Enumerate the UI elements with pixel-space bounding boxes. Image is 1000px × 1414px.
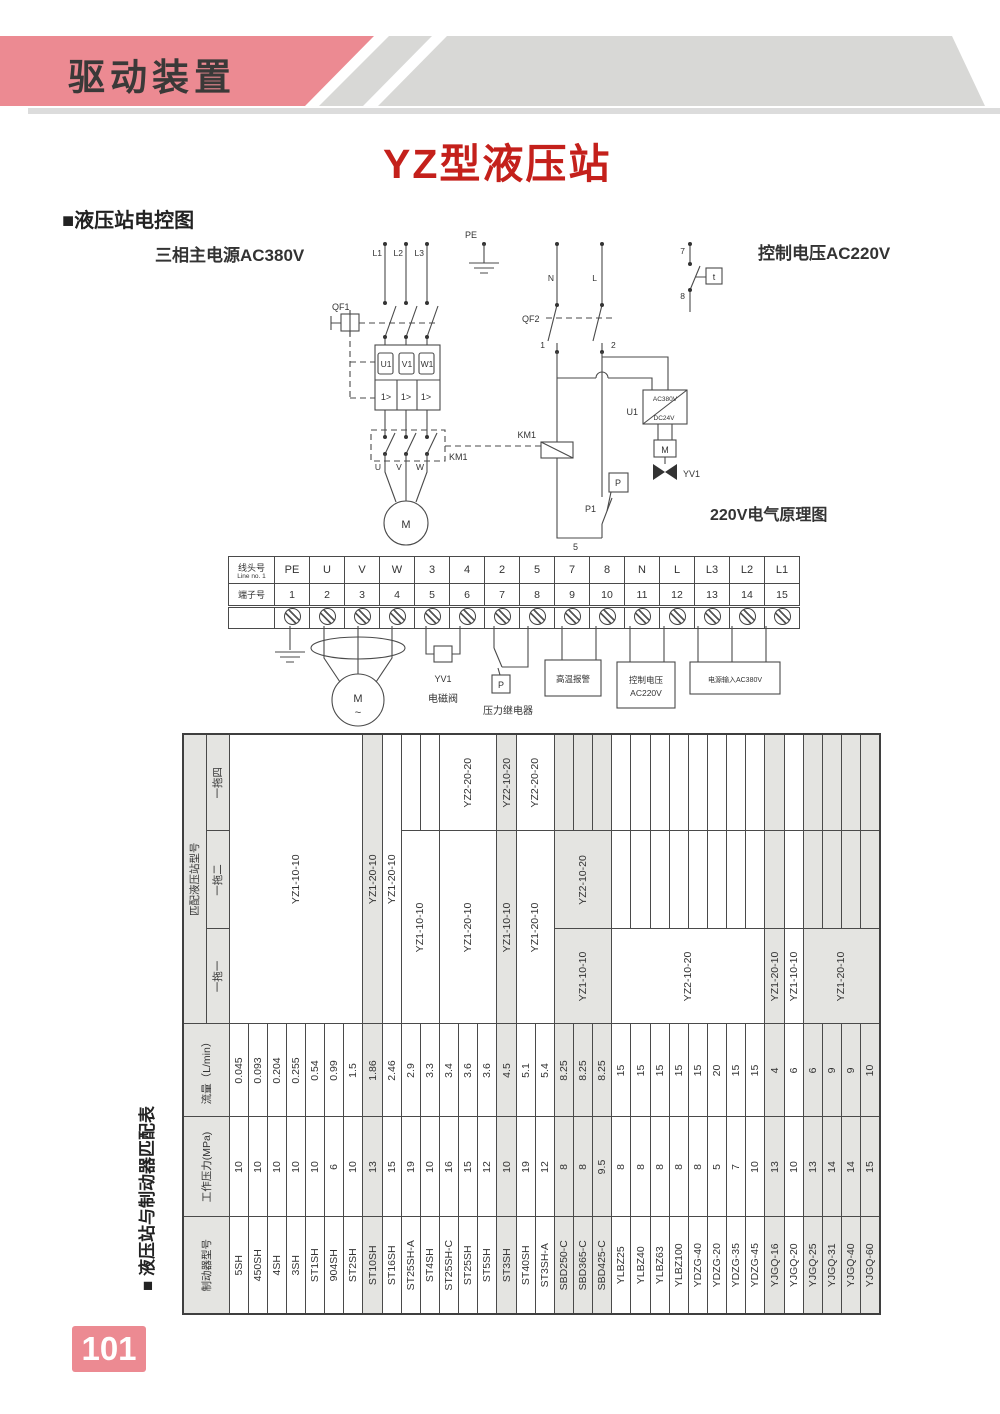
flow-cell: 3.4 [440,1024,459,1117]
terminal-cell: 2 [310,584,345,607]
brake-model-cell: SBD250-C [554,1217,573,1314]
svg-text:L1: L1 [373,248,383,258]
flow-cell: 0.99 [325,1024,344,1117]
terminal-cell: 1 [275,584,310,607]
svg-text:YV1: YV1 [434,674,451,684]
terminal-screw-icon [459,608,476,625]
terminal-cell: V [345,557,380,584]
brake-model-cell: ST3SH [497,1217,516,1314]
brake-model-cell: YDZG-45 [746,1217,765,1314]
flow-cell: 20 [708,1024,727,1117]
pressure-relay-annotation: P 压力继电器 [483,626,533,717]
empty-station-cell [669,831,688,929]
terminal-cell: 8 [520,584,555,607]
terminal-cell: 8 [590,557,625,584]
match-table-area: 制动器型号工作压力(MPa)流量（L/min）匹配液压站型号一拖一一拖二一拖四5… [182,735,878,1315]
pressure-cell: 10 [248,1117,267,1217]
svg-text:KM1: KM1 [449,452,468,462]
station-model-cell: YZ1-10-10 [784,929,803,1024]
station-model-cell: YZ1-20-10 [363,734,382,1024]
svg-text:YV1: YV1 [683,469,700,479]
flow-cell: 5.4 [535,1024,554,1117]
station-model-cell: YZ1-20-10 [382,734,401,1024]
terminal-cell: 11 [625,584,660,607]
svg-text:P1: P1 [585,504,596,514]
station-model-cell: YZ1-20-10 [440,831,497,1024]
svg-text:W1: W1 [421,359,434,369]
header-one-drag-one: 一拖一 [206,929,229,1024]
brake-model-cell: YLBZ100 [669,1217,688,1314]
overload-symbol: 1> [401,392,411,402]
section-heading-match-table: ■ 液压站与制动器匹配表 [133,1091,154,1306]
station-model-cell: YZ1-20-10 [803,929,880,1024]
brake-model-cell: ST4SH [420,1217,439,1314]
pressure-cell: 14 [842,1117,861,1217]
empty-station-cell [708,734,727,831]
tilde-icon: ~ [355,707,361,719]
empty-station-cell [765,734,784,831]
pressure-cell: 12 [478,1117,497,1217]
brake-model-cell: ST40SH [516,1217,535,1314]
brake-model-cell: YJGQ-40 [842,1217,861,1314]
pressure-cell: 10 [784,1117,803,1217]
brake-model-cell: ST2SH [344,1217,363,1314]
flow-cell: 15 [746,1024,765,1117]
high-temp-alarm-box: 高温报警 [545,626,601,696]
flow-cell: 6 [784,1024,803,1117]
label-control-voltage: 控制电压AC220V [758,239,890,264]
empty-station-cell [727,831,746,929]
svg-text:V: V [396,462,402,472]
empty-station-cell [631,831,650,929]
pressure-cell: 10 [306,1117,325,1217]
terminal-cell: 端子号 [229,584,275,607]
svg-text:AC220V: AC220V [630,688,662,698]
station-model-cell: YZ2-20-20 [516,734,554,831]
empty-station-cell [861,831,880,929]
empty-station-cell [650,831,669,929]
pressure-cell: 13 [803,1117,822,1217]
pressure-cell: 10 [420,1117,439,1217]
motor-label: M [401,519,410,531]
svg-text:DC24V: DC24V [654,415,676,422]
page-number: 101 [72,1326,146,1372]
terminal-annotations: M ~ YV1 电磁阀 P 压力继电器 高温报警 控制电压 AC220V 电源输… [228,626,790,738]
pressure-cell: 10 [746,1117,765,1217]
svg-text:M: M [353,693,362,705]
svg-text:压力继电器: 压力继电器 [483,704,533,717]
flow-cell: 1.86 [363,1024,382,1117]
svg-text:QF1: QF1 [332,302,350,312]
brake-model-cell: ST1SH [306,1217,325,1314]
empty-station-cell [631,734,650,831]
empty-station-cell [784,734,803,831]
empty-station-cell [861,734,880,831]
svg-text:7: 7 [680,246,685,256]
svg-text:W: W [416,462,424,472]
terminal-screw-icon [494,608,511,625]
terminal-cell: 10 [590,584,625,607]
empty-station-cell [765,831,784,929]
label-main-power: 三相主电源AC380V [155,241,304,266]
brake-model-cell: YJGQ-20 [784,1217,803,1314]
flow-cell: 15 [727,1024,746,1117]
terminal-cell: 9 [555,584,590,607]
terminal-cell: 14 [730,584,765,607]
pressure-cell: 5 [708,1117,727,1217]
banner-underline [28,108,1000,114]
terminal-cell: N [625,557,660,584]
pressure-cell: 8 [574,1117,593,1217]
pressure-cell: 8 [688,1117,707,1217]
station-model-cell: YZ1-10-10 [229,734,363,1024]
pe-ground-symbol: PE [465,230,499,273]
overload-symbol: 1> [421,392,431,402]
temperature-contact: 7 8 t [680,242,722,312]
svg-text:AC380V: AC380V [653,396,678,403]
brake-model-cell: YJGQ-60 [861,1217,880,1314]
svg-text:U1: U1 [381,359,392,369]
station-model-cell: YZ2-20-20 [440,734,497,831]
pressure-cell: 9.5 [593,1117,612,1217]
terminal-cell: 7 [555,557,590,584]
brake-model-cell: 3SH [286,1217,305,1314]
pressure-cell: 10 [267,1117,286,1217]
empty-station-cell [420,734,439,831]
brake-model-cell: YJGQ-25 [803,1217,822,1314]
qf1-breaker: QF1 [331,302,437,398]
terminal-cell: 3 [415,557,450,584]
brake-model-cell: ST25SH [459,1217,478,1314]
flow-cell: 15 [631,1024,650,1117]
svg-text:U1: U1 [626,407,638,417]
brake-model-cell: ST25SH-C [440,1217,459,1314]
empty-station-cell [746,734,765,831]
empty-station-cell [727,734,746,831]
flow-cell: 8.25 [554,1024,573,1117]
svg-text:电源输入AC380V: 电源输入AC380V [708,675,762,684]
brake-model-cell: ST3SH-A [535,1217,554,1314]
flow-cell: 4 [765,1024,784,1117]
banner-title: 驱动装置 [68,47,236,101]
terminal-screw-icon [319,608,336,625]
terminal-cell: 3 [345,584,380,607]
empty-station-cell [822,734,841,831]
svg-text:t: t [713,272,716,282]
svg-text:M: M [661,445,669,455]
electric-control-diagram: PE L1 L2 L3 QF1 U1 V1 W1 1> 1> [325,228,735,560]
empty-station-cell [842,831,861,929]
terminal-table: 线头号Line no. 1PEUVW342578NLL3L2L1端子号12345… [228,556,800,629]
match-table: 制动器型号工作压力(MPa)流量（L/min）匹配液压站型号一拖一一拖二一拖四5… [182,733,881,1315]
flow-cell: 8.25 [574,1024,593,1117]
pressure-cell: 8 [631,1117,650,1217]
pressure-cell: 19 [401,1117,420,1217]
brake-model-cell: SBD425-C [593,1217,612,1314]
terminal-cell: 15 [765,584,800,607]
flow-cell: 3.6 [459,1024,478,1117]
station-model-cell: YZ2-10-20 [554,831,611,929]
brake-model-cell: YLBZ25 [612,1217,631,1314]
flow-cell: 15 [650,1024,669,1117]
pressure-cell: 10 [497,1117,516,1217]
pressure-cell: 10 [344,1117,363,1217]
svg-text:P: P [615,478,621,488]
terminal-cell: 2 [485,557,520,584]
flow-cell: 10 [861,1024,880,1117]
pressure-cell: 7 [727,1117,746,1217]
three-phase-lines: L1 L2 L3 [373,242,438,345]
pressure-cell: 8 [650,1117,669,1217]
terminal-cell: W [380,557,415,584]
svg-text:QF2: QF2 [522,314,540,324]
pressure-cell: 19 [516,1117,535,1217]
empty-station-cell [688,734,707,831]
flow-cell: 15 [669,1024,688,1117]
section-heading-electric: ■液压站电控图 [62,204,194,233]
empty-station-cell [746,831,765,929]
terminal-cell: 线头号Line no. 1 [229,557,275,584]
flow-cell: 5.1 [516,1024,535,1117]
km1-main-contacts: KM1 [371,410,541,462]
svg-text:KM1: KM1 [517,430,536,440]
terminal-cell: PE [275,557,310,584]
brake-model-cell: YLBZ40 [631,1217,650,1314]
solenoid-valve-annotation: YV1 电磁阀 [426,626,460,705]
empty-station-cell [822,831,841,929]
brake-model-cell: 904SH [325,1217,344,1314]
brake-model-cell: 5SH [229,1217,248,1314]
terminal-screw-icon [564,608,581,625]
terminal-cell: 7 [485,584,520,607]
pressure-cell: 8 [669,1117,688,1217]
svg-text:P: P [498,680,504,690]
brake-model-cell: YDZG-20 [708,1217,727,1314]
header-flow: 流量（L/min） [183,1024,229,1117]
flow-cell: 9 [822,1024,841,1117]
svg-text:5: 5 [573,542,578,552]
pressure-cell: 10 [229,1117,248,1217]
station-model-cell: YZ2-10-20 [497,734,516,831]
terminal-cell: U [310,557,345,584]
valve-icon [665,464,677,480]
header-one-drag-two: 一拖二 [206,831,229,929]
pressure-cell: 12 [535,1117,554,1217]
header-pressure: 工作压力(MPa) [183,1117,229,1217]
station-model-cell: YZ2-10-20 [612,929,765,1024]
brake-model-cell: YDZG-40 [688,1217,707,1314]
pressure-cell: 13 [363,1117,382,1217]
ground-symbol [275,626,305,662]
terminal-screw-icon [634,608,651,625]
terminal-screw-icon [284,608,301,625]
flow-cell: 8.25 [593,1024,612,1117]
brake-model-cell: YDZG-35 [727,1217,746,1314]
terminal-strip-table: 线头号Line no. 1PEUVW342578NLL3L2L1端子号12345… [228,556,800,629]
empty-station-cell [593,734,612,831]
page-title: YZ型液压站 [383,130,611,190]
pressure-cell: 8 [554,1117,573,1217]
brake-model-cell: 4SH [267,1217,286,1314]
flow-cell: 0.54 [306,1024,325,1117]
empty-station-cell [574,734,593,831]
empty-station-cell [803,734,822,831]
terminal-screw-icon [354,608,371,625]
svg-text:2: 2 [611,340,616,350]
svg-text:N: N [548,273,554,283]
station-model-cell: YZ1-10-10 [497,831,516,1024]
catalog-page: { "page": { "banner_title": "驱动装置", "tit… [0,0,1000,1414]
motor-annotation: M ~ [311,626,405,726]
flow-cell: 6 [803,1024,822,1117]
terminal-cell: 5 [520,557,555,584]
flow-cell: 15 [688,1024,707,1117]
empty-station-cell [612,831,631,929]
flow-cell: 9 [842,1024,861,1117]
svg-text:L: L [592,273,597,283]
pressure-cell: 14 [822,1117,841,1217]
terminal-screw-icon [599,608,616,625]
flow-cell: 2.46 [382,1024,401,1117]
terminal-cell: 12 [660,584,695,607]
terminal-cell: L3 [695,557,730,584]
terminal-cell: 13 [695,584,730,607]
terminal-cell: L [660,557,695,584]
flow-cell: 2.9 [401,1024,420,1117]
terminal-cell: 6 [450,584,485,607]
control-circuit: N L QF2 1 2 KM1 5 P P1 [517,242,668,552]
brake-model-cell: YJGQ-16 [765,1217,784,1314]
station-model-cell: YZ1-20-10 [516,831,554,1024]
empty-station-cell [612,734,631,831]
svg-text:控制电压: 控制电压 [629,675,664,685]
main-motor: U V W M [375,454,428,545]
terminal-cell: L2 [730,557,765,584]
banner-gray-band [378,36,985,106]
pressure-cell: 13 [765,1117,784,1217]
svg-text:U: U [375,462,381,472]
terminal-cell: 4 [450,557,485,584]
terminal-screw-icon [774,608,791,625]
flow-cell: 0.093 [248,1024,267,1117]
brake-model-cell: ST10SH [363,1217,382,1314]
svg-text:电磁阀: 电磁阀 [428,692,458,705]
brake-model-cell: YLBZ63 [650,1217,669,1314]
terminal-cell: L1 [765,557,800,584]
station-model-cell: YZ1-20-10 [765,929,784,1024]
header-model: 制动器型号 [183,1217,229,1314]
control-voltage-box: 控制电压 AC220V [617,626,675,708]
pressure-cell: 15 [459,1117,478,1217]
pressure-cell: 8 [612,1117,631,1217]
brake-model-cell: ST16SH [382,1217,401,1314]
flow-cell: 4.5 [497,1024,516,1117]
power-input-box: 电源输入AC380V [690,626,780,694]
terminal-cell: 5 [415,584,450,607]
valve-icon [653,464,665,480]
u1-converter: AC380V DC24V U1 M YV1 [626,390,700,480]
header-one-drag-four: 一拖四 [206,734,229,831]
pressure-cell: 15 [382,1117,401,1217]
empty-station-cell [401,734,420,831]
overload-symbol: 1> [381,392,391,402]
empty-station-cell [669,734,688,831]
empty-station-cell [554,734,573,831]
station-model-cell: YZ1-10-10 [554,929,611,1024]
terminal-screw-icon [529,608,546,625]
brake-model-cell: ST25SH-A [401,1217,420,1314]
header-station-group: 匹配液压站型号 [183,734,206,1024]
terminal-screw-icon [739,608,756,625]
brake-model-cell: 450SH [248,1217,267,1314]
pressure-cell: 10 [286,1117,305,1217]
svg-text:8: 8 [680,291,685,301]
empty-station-cell [803,831,822,929]
flow-cell: 0.204 [267,1024,286,1117]
empty-station-cell [784,831,803,929]
empty-station-cell [688,831,707,929]
pressure-cell: 15 [861,1117,880,1217]
svg-text:L3: L3 [415,248,425,258]
flow-cell: 15 [612,1024,631,1117]
station-model-cell: YZ1-10-10 [401,831,439,1024]
brake-model-cell: SBD365-C [574,1217,593,1314]
svg-text:1: 1 [540,340,545,350]
flow-cell: 3.3 [420,1024,439,1117]
pressure-cell: 6 [325,1117,344,1217]
terminal-cell: 4 [380,584,415,607]
overload-box: U1 V1 W1 1> 1> 1> [375,345,440,410]
empty-station-cell [708,831,727,929]
terminal-screw-icon [389,608,406,625]
brake-model-cell: ST5SH [478,1217,497,1314]
brake-model-cell: YJGQ-31 [822,1217,841,1314]
flow-cell: 0.045 [229,1024,248,1117]
flow-cell: 3.6 [478,1024,497,1117]
svg-text:V1: V1 [402,359,413,369]
terminal-screw-icon [669,608,686,625]
terminal-screw-icon [424,608,441,625]
flow-cell: 1.5 [344,1024,363,1117]
svg-text:PE: PE [465,230,477,240]
flow-cell: 0.255 [286,1024,305,1117]
terminal-screw-icon [704,608,721,625]
empty-station-cell [842,734,861,831]
svg-text:L2: L2 [394,248,404,258]
empty-station-cell [650,734,669,831]
pressure-cell: 16 [440,1117,459,1217]
svg-text:高温报警: 高温报警 [556,674,591,684]
